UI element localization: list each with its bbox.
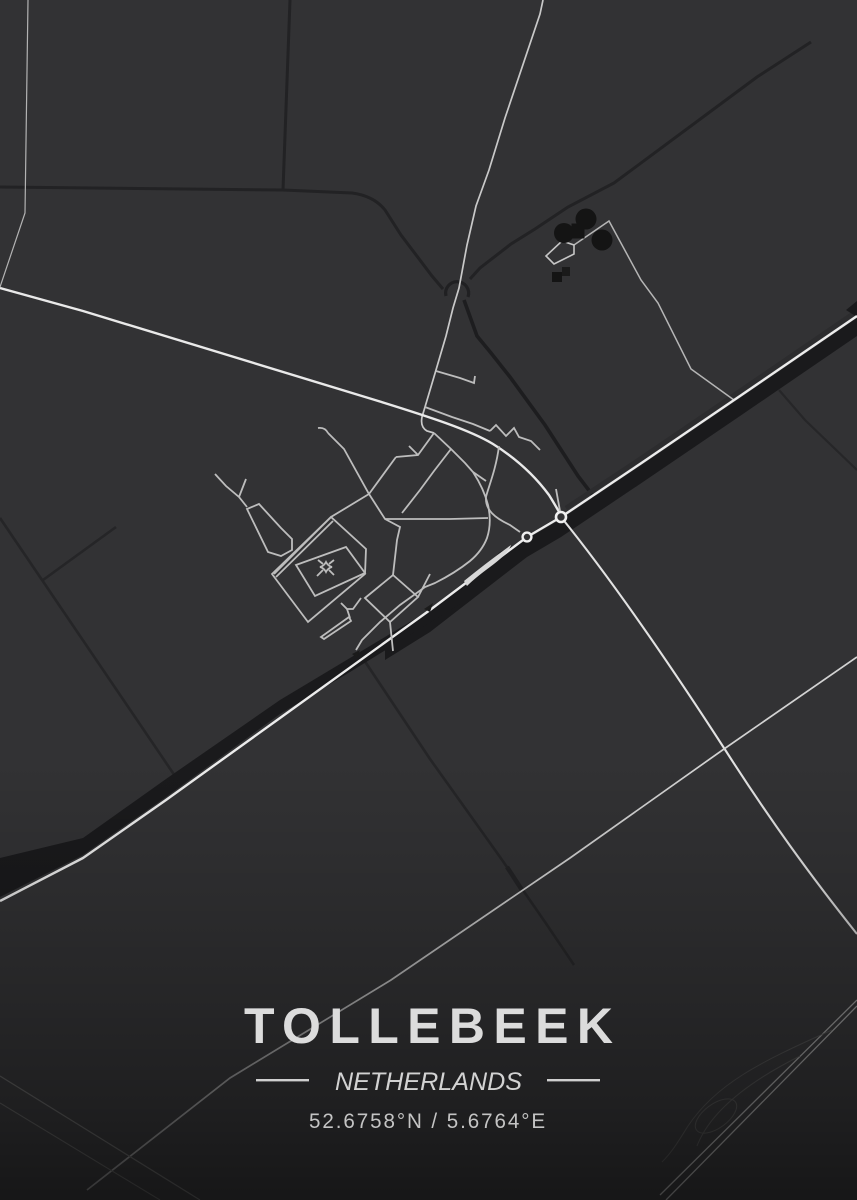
svg-text:NETHERLANDS: NETHERLANDS [335, 1068, 522, 1096]
svg-text:TOLLEBEEK: TOLLEBEEK [244, 998, 613, 1054]
svg-text:52.6758°N / 5.6764°E: 52.6758°N / 5.6764°E [309, 1109, 547, 1133]
